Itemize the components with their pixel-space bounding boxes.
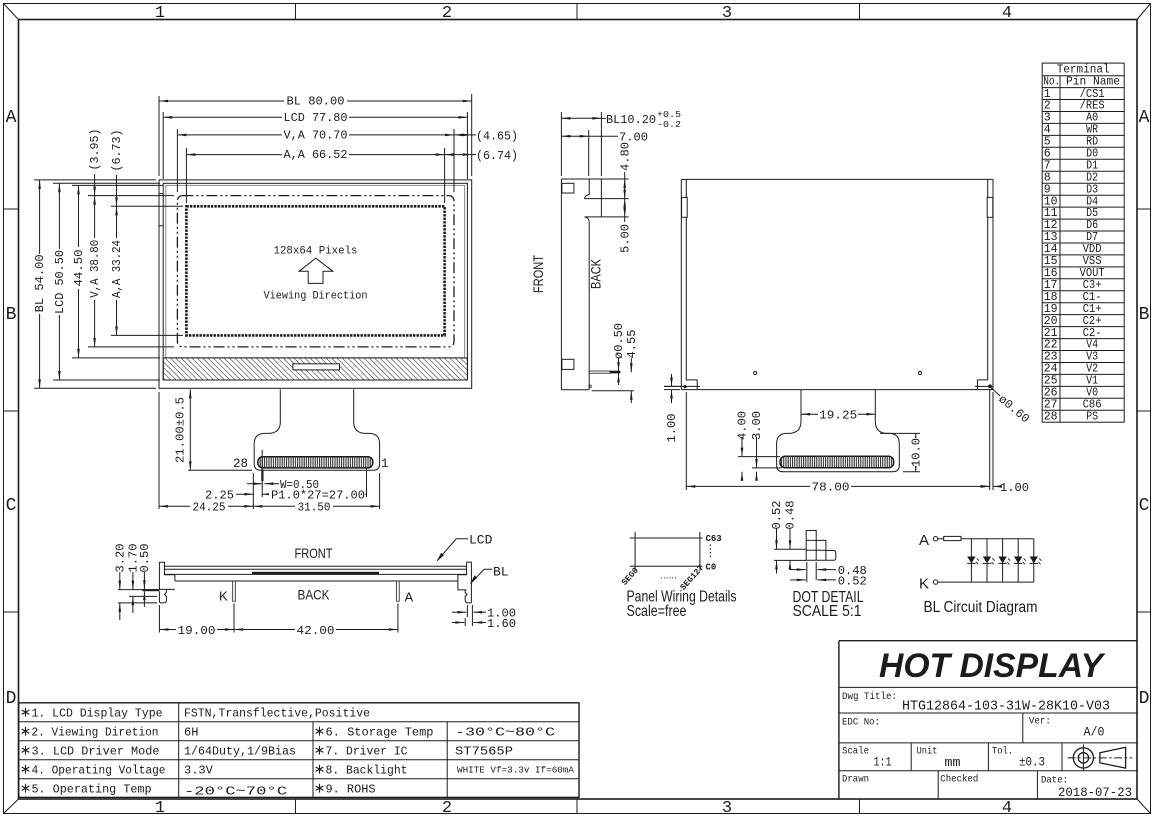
svg-text:3.20: 3.20 [113,544,127,573]
svg-text:2: 2 [442,4,452,23]
svg-text:BL: BL [493,565,509,580]
svg-text:A/0: A/0 [1084,725,1105,740]
svg-text:Scale=free: Scale=free [627,603,687,620]
svg-text:3.3V: 3.3V [184,764,214,778]
svg-text:FRONT: FRONT [531,255,546,293]
svg-text:D: D [6,689,17,709]
svg-text:Checked: Checked [940,774,978,786]
svg-text:4.55: 4.55 [625,330,639,359]
svg-text:3: 3 [722,4,732,23]
svg-text:C: C [6,496,17,516]
svg-text:-30°C~80°C: -30°C~80°C [455,726,555,740]
svg-text:5. Operating Temp: 5. Operating Temp [32,783,152,797]
svg-text:(6.74): (6.74) [476,149,518,163]
svg-text:1: 1 [381,457,389,471]
svg-text:A: A [6,108,17,128]
svg-text:Dwg Title:: Dwg Title: [842,691,897,703]
svg-text:31.50: 31.50 [298,501,331,515]
svg-text:D: D [1139,689,1150,709]
svg-text:LCD 77.80: LCD 77.80 [284,111,348,125]
svg-text:K: K [219,589,228,604]
svg-text:FRONT: FRONT [295,545,333,561]
svg-text:LCD 50.50: LCD 50.50 [53,250,67,314]
svg-text:LCD: LCD [469,533,493,548]
svg-text:(4.65): (4.65) [476,129,518,143]
svg-text:2. Viewing Diretion: 2. Viewing Diretion [32,726,159,740]
svg-text:19.25: 19.25 [819,408,857,422]
svg-text:7. Driver IC: 7. Driver IC [326,745,408,759]
svg-text:6. Storage Temp: 6. Storage Temp [326,726,434,740]
svg-text:4. Operating Voltage: 4. Operating Voltage [32,764,166,778]
svg-text:5.00: 5.00 [618,224,632,253]
svg-text:3: 3 [722,799,732,817]
svg-text:0.50: 0.50 [138,544,152,573]
svg-text:BL 54.00: BL 54.00 [33,254,47,312]
svg-text:28: 28 [233,457,248,471]
svg-text:V,A 38.80: V,A 38.80 [88,240,102,298]
svg-text:......: ...... [660,572,677,583]
svg-text:1/64Duty,1/9Bias: 1/64Duty,1/9Bias [184,745,296,759]
svg-text:4.80: 4.80 [618,142,632,171]
svg-text:3. LCD Driver Mode: 3. LCD Driver Mode [32,745,160,759]
svg-text:9. ROHS: 9. ROHS [326,783,376,797]
svg-text:ST7565P: ST7565P [455,745,513,759]
svg-text:BACK: BACK [589,259,604,289]
svg-text:Ver:: Ver: [1029,716,1051,728]
svg-text:24.25: 24.25 [193,501,226,515]
svg-text:C0: C0 [706,563,717,573]
svg-text:0.52: 0.52 [838,574,867,588]
svg-text:mm: mm [945,755,961,770]
svg-text:BL 80.00: BL 80.00 [287,95,345,109]
svg-text:2018-07-23: 2018-07-23 [1058,785,1132,800]
svg-text:8. Backlight: 8. Backlight [326,764,408,778]
svg-text:A: A [919,532,929,549]
svg-text:BL Circuit Diagram: BL Circuit Diagram [924,599,1038,616]
svg-text:HTG12864-103-31W-28K10-V03: HTG12864-103-31W-28K10-V03 [902,700,1110,715]
svg-text:1: 1 [155,799,165,817]
svg-text:C63: C63 [706,534,722,544]
svg-text:K: K [919,576,929,593]
svg-text:(6.73): (6.73) [110,130,124,172]
svg-text:BL10.20: BL10.20 [606,113,656,127]
svg-text:4: 4 [1002,4,1012,23]
svg-text:1.60: 1.60 [487,617,516,631]
svg-text:19.00: 19.00 [178,624,216,638]
svg-text:±0.3: ±0.3 [1019,755,1045,770]
svg-text:HOT DISPLAY: HOT DISPLAY [879,647,1106,685]
svg-text:FSTN,Transflective,Positive: FSTN,Transflective,Positive [184,707,370,721]
svg-text:1: 1 [155,4,165,23]
svg-text:78.00: 78.00 [812,481,850,495]
svg-text:Tol.: Tol. [992,746,1013,758]
svg-text:No.: No. [1043,76,1060,89]
svg-text:0.52: 0.52 [770,501,784,530]
svg-text:SCALE 5:1: SCALE 5:1 [793,603,862,620]
svg-text:B: B [6,305,17,325]
svg-text:BACK: BACK [298,587,331,603]
svg-text:21.00±0.5: 21.00±0.5 [174,397,188,463]
svg-text:A: A [1139,108,1150,128]
svg-text:4.00: 4.00 [736,411,750,440]
svg-text:1.00: 1.00 [1000,481,1029,495]
svg-text:0.48: 0.48 [784,501,798,530]
svg-text:42.00: 42.00 [297,624,335,638]
svg-text:WHITE Vf=3.3v If=60mA: WHITE Vf=3.3v If=60mA [457,765,574,776]
svg-text:28: 28 [1044,410,1058,423]
svg-text:A,A 33.24: A,A 33.24 [110,240,124,298]
svg-text:B: B [1139,305,1150,325]
svg-text:V,A 70.70: V,A 70.70 [284,128,348,142]
svg-text:10.0: 10.0 [909,438,923,467]
svg-text:-20°C~70°C: -20°C~70°C [184,785,287,799]
svg-text:1. LCD Display Type: 1. LCD Display Type [32,707,163,721]
svg-text:A: A [405,590,414,605]
svg-text:Terminal: Terminal [1057,64,1110,77]
svg-text:Pin Name: Pin Name [1066,76,1120,89]
svg-text:(3.95): (3.95) [88,129,102,171]
svg-text:A,A 66.52: A,A 66.52 [284,148,348,162]
svg-text:-0.2: -0.2 [657,119,681,130]
svg-text:4: 4 [1002,799,1012,817]
svg-text:44.50: 44.50 [72,250,86,287]
svg-text:PS: PS [1086,410,1098,423]
svg-text:Viewing Direction: Viewing Direction [264,291,368,303]
svg-text:1:1: 1:1 [874,755,892,770]
svg-text:EDC No:: EDC No: [842,717,880,729]
svg-text:3.00: 3.00 [750,411,764,440]
svg-text:Drawn: Drawn [842,774,869,786]
svg-text:2: 2 [442,799,452,817]
svg-text:Scale: Scale [842,746,869,758]
svg-text:6H: 6H [184,726,198,740]
svg-text:Unit: Unit [917,746,938,758]
svg-text:1.00: 1.00 [665,414,679,443]
svg-text:C: C [1139,496,1150,516]
svg-text:128x64 Pixels: 128x64 Pixels [274,246,358,258]
